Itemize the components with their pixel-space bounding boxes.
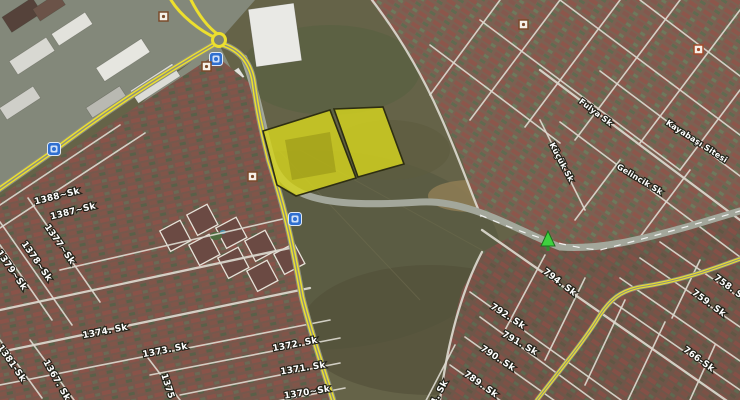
poi-marker-icon[interactable]: [248, 172, 257, 181]
photo-marker-icon[interactable]: [289, 213, 302, 226]
poi-marker-icon[interactable]: [159, 12, 168, 21]
poi-marker-icon[interactable]: [694, 45, 703, 54]
poi-marker-icon[interactable]: [519, 20, 528, 29]
satellite-map[interactable]: 1388~Sk 1387~Sk 1377~Sk 1378~Sk 1379~Sk …: [0, 0, 740, 400]
parcel-inner-detail: [285, 132, 336, 180]
poi-marker-icon[interactable]: [202, 62, 211, 71]
photo-marker-icon[interactable]: [48, 143, 61, 156]
